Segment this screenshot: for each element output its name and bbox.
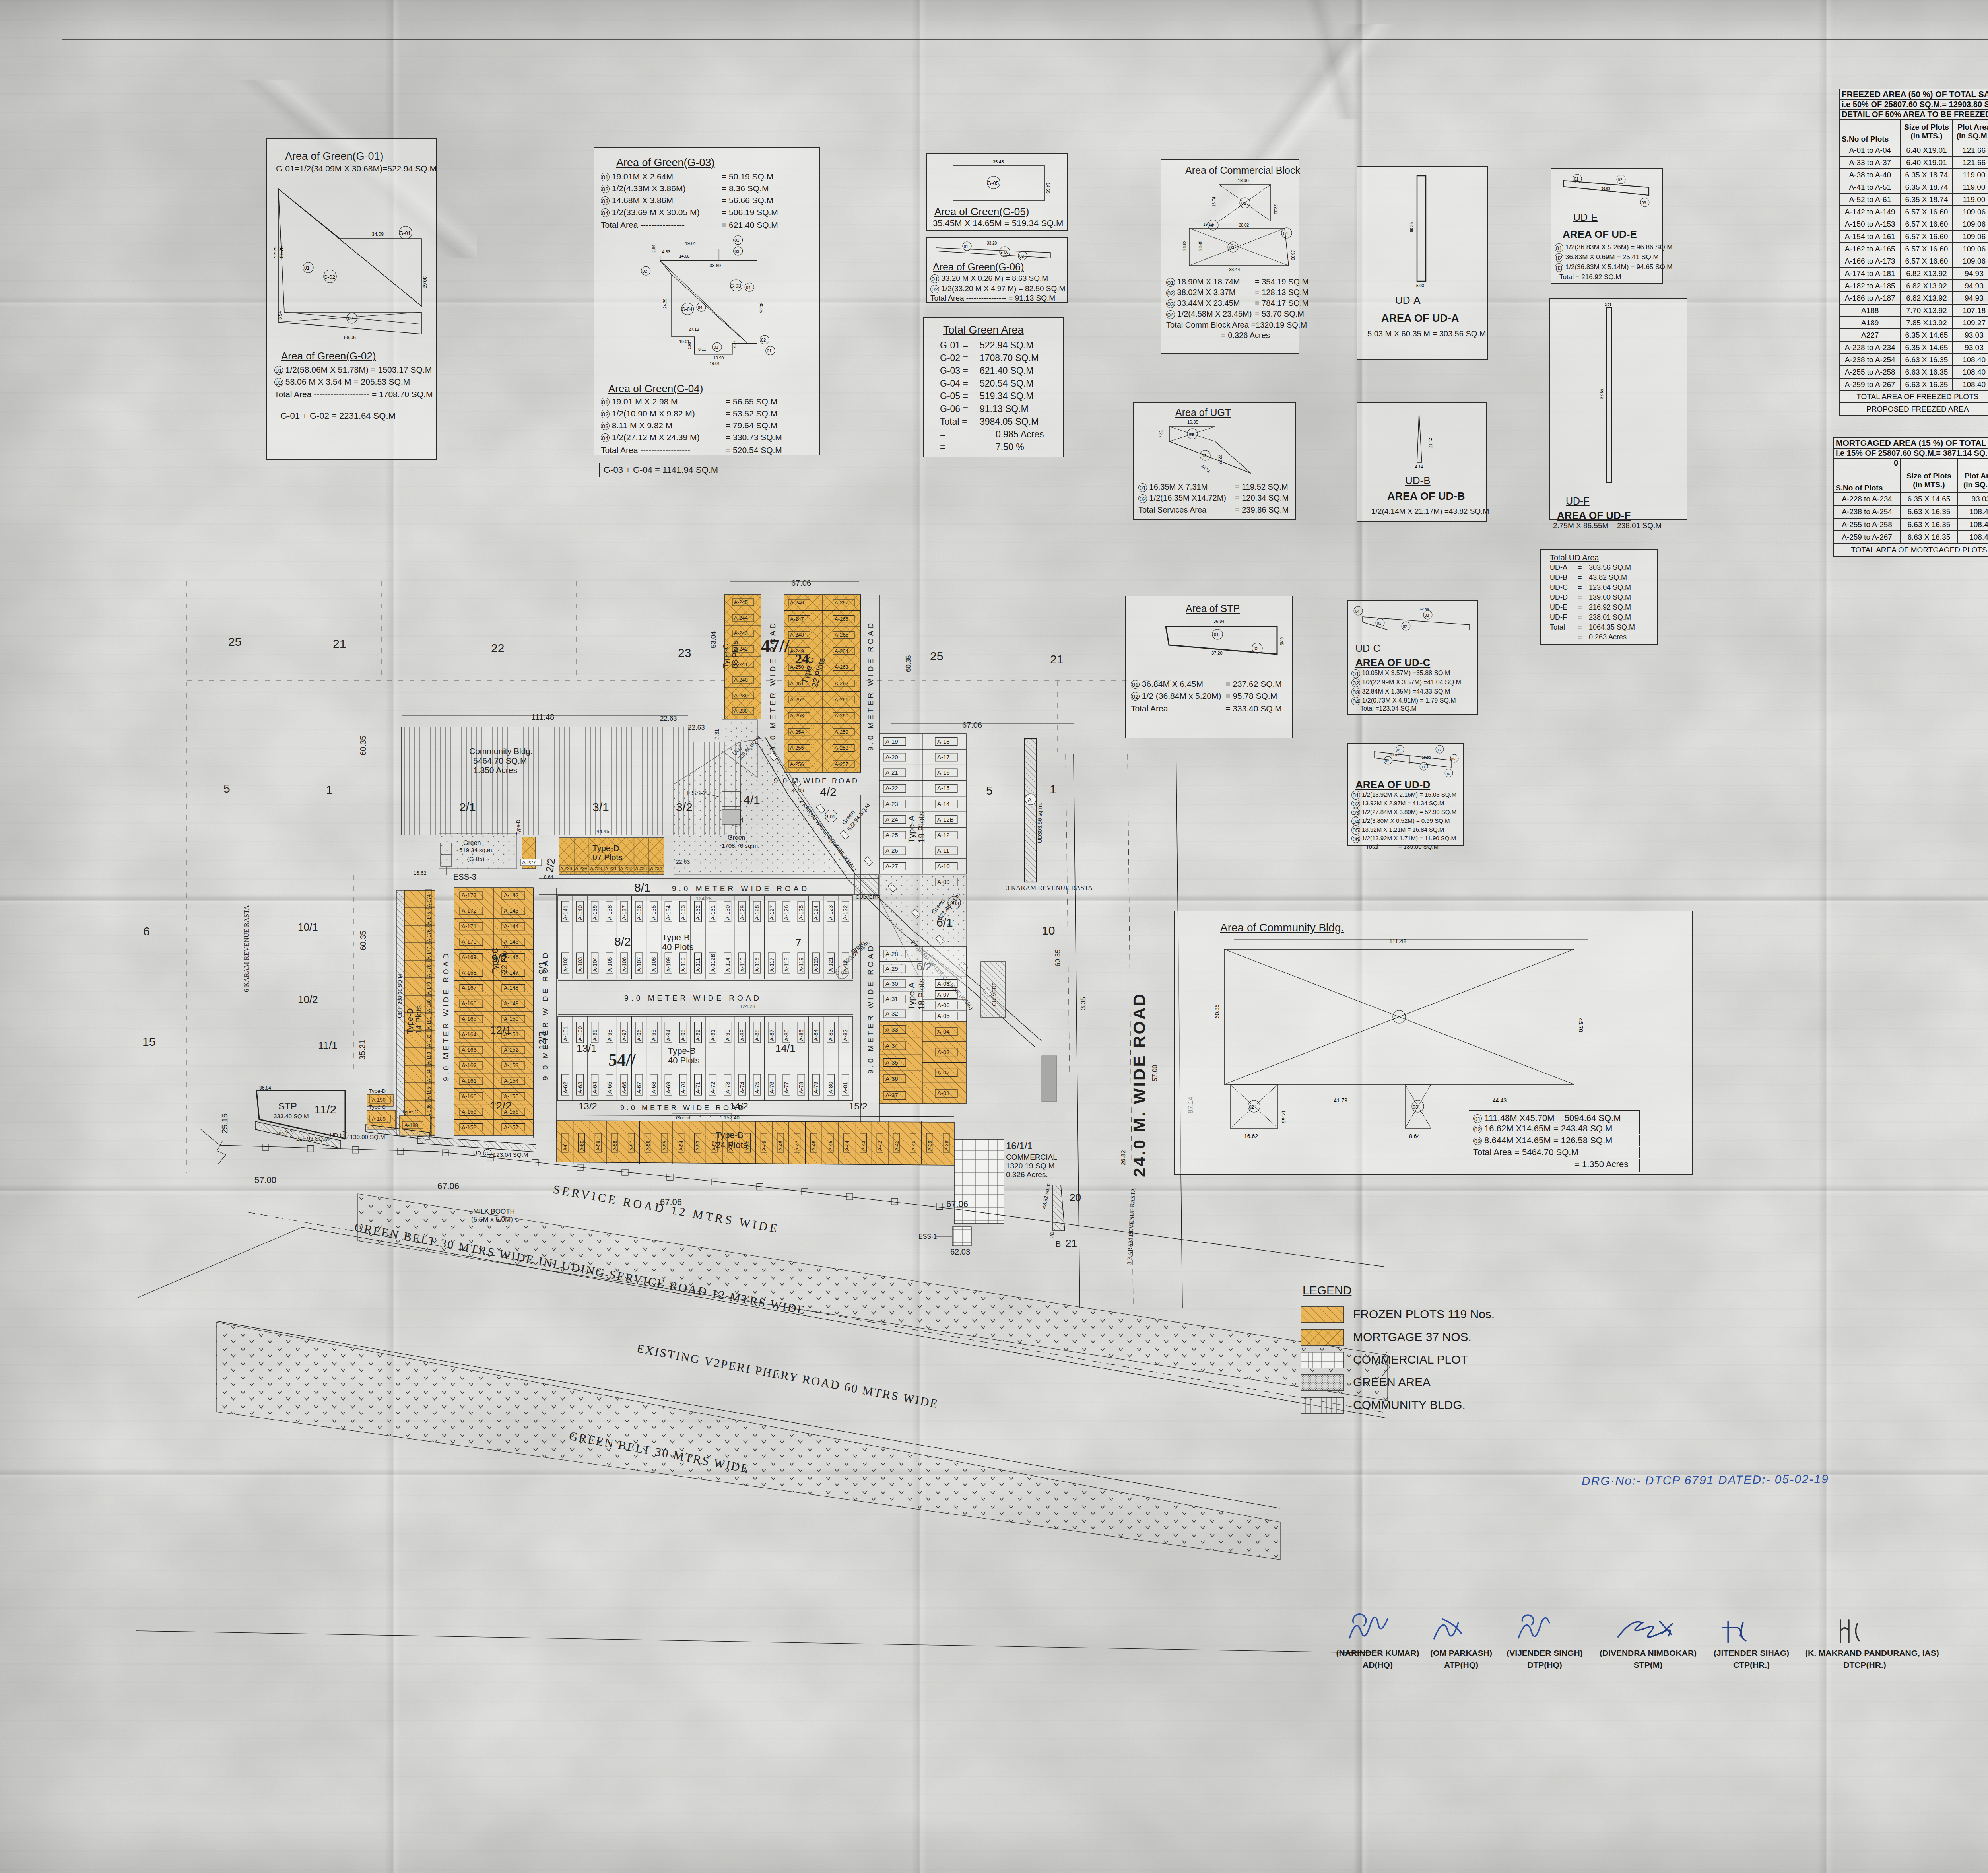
- svg-text:A-64: A-64: [592, 1082, 598, 1094]
- svg-text:Type-C: Type-C: [722, 644, 730, 668]
- svg-text:A-134: A-134: [665, 905, 672, 920]
- svg-text:0.326 Acres.: 0.326 Acres.: [1006, 1170, 1048, 1179]
- svg-text:6 KARAM REVENUE RASTA: 6 KARAM REVENUE RASTA: [243, 905, 250, 992]
- svg-text:A-54: A-54: [679, 1141, 684, 1151]
- svg-text:07 Plots: 07 Plots: [592, 853, 623, 862]
- svg-text:05: 05: [1451, 757, 1455, 761]
- svg-text:A-96: A-96: [636, 1029, 642, 1041]
- svg-text:A-144: A-144: [504, 923, 519, 929]
- svg-text:A-177: A-177: [426, 947, 432, 960]
- svg-text:COMMERCIAL: COMMERCIAL: [1006, 1153, 1057, 1161]
- svg-text:A-233: A-233: [635, 866, 647, 871]
- svg-text:A-81: A-81: [842, 1082, 848, 1094]
- svg-text:01: 01: [1394, 1014, 1399, 1020]
- svg-text:A-152: A-152: [504, 1047, 519, 1053]
- svg-text:A-168: A-168: [462, 970, 477, 976]
- svg-text:7.31: 7.31: [1159, 430, 1163, 438]
- svg-text:ESS-1: ESS-1: [918, 1233, 937, 1240]
- svg-text:A-129: A-129: [739, 905, 745, 920]
- svg-text:21.17: 21.17: [1428, 438, 1433, 448]
- svg-text:Type-B: Type-B: [668, 1046, 696, 1056]
- svg-text:A-149: A-149: [504, 1000, 519, 1006]
- svg-text:23.90: 23.90: [1291, 250, 1295, 260]
- svg-text:9.0 METER WIDE ROAD: 9.0 METER WIDE ROAD: [866, 944, 875, 1074]
- svg-text:A-42: A-42: [878, 1141, 883, 1151]
- svg-text:A-01: A-01: [937, 1090, 950, 1096]
- svg-text:A-262: A-262: [835, 680, 848, 686]
- svg-text:Green: Green: [463, 839, 481, 846]
- svg-text:A-253: A-253: [790, 713, 804, 719]
- svg-text:60.35: 60.35: [359, 736, 367, 756]
- svg-text:A-124: A-124: [813, 905, 819, 920]
- svg-text:CULVERT: CULVERT: [991, 982, 997, 1006]
- svg-text:G-04: G-04: [681, 307, 693, 313]
- svg-text:A-80: A-80: [827, 1082, 834, 1094]
- svg-text:ESS-3: ESS-3: [453, 872, 476, 881]
- svg-text:A-60: A-60: [579, 1141, 585, 1151]
- svg-text:A-266: A-266: [835, 616, 848, 622]
- svg-text:A-12B: A-12B: [937, 816, 954, 823]
- svg-text:37.20: 37.20: [1211, 651, 1223, 655]
- svg-text:A-157: A-157: [504, 1124, 519, 1131]
- svg-text:A-182: A-182: [426, 1034, 432, 1047]
- svg-text:A-107: A-107: [636, 957, 642, 972]
- svg-text:A-228: A-228: [560, 866, 572, 871]
- svg-text:A-125: A-125: [798, 905, 804, 920]
- svg-text:A-85: A-85: [798, 1029, 804, 1041]
- svg-text:22: 22: [491, 641, 504, 655]
- svg-text:G-05: G-05: [987, 180, 999, 186]
- svg-text:A-31: A-31: [885, 995, 898, 1002]
- svg-text:A-36: A-36: [885, 1075, 898, 1082]
- svg-text:A-45: A-45: [828, 1141, 833, 1151]
- svg-text:A-258: A-258: [835, 745, 848, 751]
- svg-text:A-179: A-179: [426, 982, 432, 995]
- svg-text:A-79: A-79: [813, 1082, 819, 1094]
- svg-text:A-190: A-190: [372, 1097, 386, 1103]
- svg-text:SERVICE ROAD 12 MTRS WIDE: SERVICE ROAD 12 MTRS WIDE: [552, 1182, 780, 1235]
- svg-text:123.04 SQ.M: 123.04 SQ.M: [493, 1151, 528, 1158]
- svg-text:A-160: A-160: [462, 1093, 477, 1100]
- svg-text:A-128: A-128: [754, 905, 760, 920]
- svg-text:14.65: 14.65: [1046, 183, 1050, 194]
- svg-text:A-122: A-122: [842, 905, 848, 920]
- svg-text:A-14: A-14: [937, 800, 950, 807]
- svg-text:A-163: A-163: [462, 1047, 477, 1053]
- svg-text:8.64: 8.64: [1409, 1133, 1420, 1139]
- svg-text:A-138: A-138: [606, 905, 613, 920]
- svg-text:9.0 METER WIDE ROAD: 9.0 METER WIDE ROAD: [866, 621, 875, 751]
- svg-text:A-39: A-39: [927, 1141, 933, 1151]
- svg-text:A-102: A-102: [562, 957, 569, 972]
- svg-text:25.15: 25.15: [220, 1113, 229, 1133]
- svg-text:A-05: A-05: [937, 1012, 950, 1019]
- svg-text:13/2: 13/2: [579, 1101, 597, 1111]
- svg-text:3/2: 3/2: [676, 800, 693, 814]
- svg-text:26.82: 26.82: [1182, 241, 1187, 251]
- svg-text:A-244: A-244: [734, 615, 748, 621]
- svg-text:A-35: A-35: [885, 1059, 898, 1066]
- svg-text:18 Plots: 18 Plots: [916, 979, 926, 1010]
- svg-text:5: 5: [986, 784, 993, 797]
- svg-text:13.92: 13.92: [1390, 753, 1399, 757]
- svg-text:A-41: A-41: [894, 1141, 900, 1151]
- svg-text:A-229: A-229: [575, 866, 587, 871]
- svg-text:A-267: A-267: [835, 600, 848, 606]
- svg-text:23.45: 23.45: [1198, 241, 1203, 251]
- svg-text:A-37: A-37: [885, 1092, 898, 1098]
- svg-text:A-240: A-240: [734, 677, 748, 683]
- svg-text:A-126: A-126: [783, 905, 790, 920]
- svg-text:4.33: 4.33: [662, 250, 670, 255]
- svg-text:A-58: A-58: [612, 1141, 618, 1151]
- svg-text:08 Plots: 08 Plots: [731, 641, 739, 668]
- svg-text:32 Plots: 32 Plots: [500, 945, 509, 973]
- svg-text:A-153: A-153: [504, 1062, 519, 1069]
- svg-text:A-135: A-135: [650, 905, 657, 920]
- svg-text:19.12: 19.12: [1203, 222, 1213, 227]
- svg-text:A-24: A-24: [885, 816, 898, 823]
- svg-text:A-04: A-04: [937, 1028, 950, 1035]
- svg-text:01: 01: [1189, 432, 1194, 437]
- svg-text:45.70: 45.70: [1578, 1018, 1584, 1032]
- svg-text:A-02: A-02: [937, 1069, 950, 1076]
- svg-text:16.62: 16.62: [414, 870, 427, 876]
- svg-text:24: 24: [795, 651, 809, 666]
- svg-text:A-154: A-154: [504, 1078, 519, 1084]
- svg-text:01: 01: [1214, 632, 1219, 637]
- svg-text:A-123: A-123: [827, 905, 834, 920]
- svg-text:A-82: A-82: [842, 1029, 848, 1041]
- svg-text:A-34: A-34: [885, 1042, 898, 1049]
- svg-text:33.20: 33.20: [987, 241, 997, 245]
- svg-text:A-74: A-74: [739, 1082, 745, 1094]
- svg-text:Type-C: Type-C: [369, 1104, 386, 1110]
- svg-text:A-232: A-232: [620, 866, 632, 871]
- svg-text:A-145: A-145: [504, 938, 519, 945]
- svg-text:2.64: 2.64: [652, 245, 656, 253]
- svg-text:55.32: 55.32: [274, 246, 276, 258]
- svg-text:A-83: A-83: [827, 1029, 834, 1041]
- svg-text:2.75: 2.75: [1605, 303, 1612, 307]
- svg-text:22.11: 22.11: [1274, 204, 1278, 214]
- svg-text:5: 5: [223, 782, 230, 795]
- svg-text:A-99: A-99: [592, 1029, 598, 1041]
- svg-text:02: 02: [348, 316, 353, 321]
- svg-text:1.350 Acres: 1.350 Acres: [473, 766, 517, 775]
- svg-text:G-03: G-03: [730, 283, 741, 289]
- svg-text:A-131: A-131: [710, 905, 716, 920]
- svg-text:19 Plots: 19 Plots: [916, 812, 926, 843]
- svg-text:03: 03: [1413, 1104, 1418, 1110]
- svg-text:02: 02: [1618, 178, 1623, 182]
- svg-text:Community Bldg.: Community Bldg.: [469, 746, 533, 756]
- svg-text:Type-D: Type-D: [406, 1008, 414, 1034]
- svg-text:A-23: A-23: [885, 800, 898, 807]
- svg-text:A-70: A-70: [680, 1082, 686, 1094]
- svg-text:33.69: 33.69: [710, 263, 721, 268]
- svg-text:A-93: A-93: [680, 1029, 686, 1041]
- svg-text:A: A: [1028, 797, 1032, 803]
- svg-text:A-48: A-48: [778, 1141, 784, 1151]
- svg-text:A-183: A-183: [426, 1052, 432, 1065]
- svg-text:A-234: A-234: [650, 866, 662, 871]
- svg-text:A-66: A-66: [621, 1082, 627, 1094]
- svg-text:03: 03: [1425, 613, 1429, 618]
- svg-text:53.04: 53.04: [710, 631, 717, 648]
- svg-text:27.12: 27.12: [689, 327, 699, 332]
- svg-text:67.06: 67.06: [791, 579, 811, 587]
- svg-text:3/1: 3/1: [592, 800, 609, 814]
- svg-text:03: 03: [1421, 765, 1425, 769]
- svg-text:A-185: A-185: [426, 1087, 432, 1100]
- svg-text:A-136: A-136: [636, 905, 642, 920]
- svg-text:04: 04: [698, 305, 703, 310]
- svg-text:A-38: A-38: [944, 1141, 949, 1151]
- svg-text:A-47: A-47: [795, 1141, 800, 1151]
- svg-text:STP: STP: [278, 1101, 297, 1111]
- svg-text:24.39: 24.39: [663, 299, 667, 309]
- svg-text:A-148: A-148: [504, 985, 519, 991]
- svg-text:B: B: [1056, 1240, 1061, 1248]
- svg-text:02: 02: [643, 269, 647, 274]
- svg-text:23: 23: [678, 646, 691, 659]
- svg-text:A-105: A-105: [606, 957, 613, 972]
- svg-text:26.82: 26.82: [1120, 1150, 1126, 1165]
- svg-text:62.03: 62.03: [950, 1247, 970, 1256]
- svg-text:01: 01: [1397, 748, 1401, 752]
- svg-text:C: C: [485, 1151, 488, 1156]
- svg-text:A-29: A-29: [885, 965, 898, 972]
- svg-text:8/1: 8/1: [634, 881, 651, 894]
- svg-text:01: 01: [767, 349, 772, 353]
- svg-text:A-61: A-61: [563, 1141, 568, 1151]
- svg-text:303.56 sq.m.: 303.56 sq.m.: [1037, 803, 1043, 835]
- svg-text:02: 02: [761, 338, 766, 342]
- svg-text:UD F 238.01 SQ.M: UD F 238.01 SQ.M: [397, 974, 403, 1018]
- svg-text:A-90: A-90: [724, 1029, 731, 1041]
- svg-text:A-175: A-175: [426, 912, 432, 925]
- svg-text:9.0 M WIDE ROAD: 9.0 M WIDE ROAD: [774, 777, 859, 785]
- svg-text:A-84: A-84: [813, 1029, 819, 1041]
- svg-text:18.74: 18.74: [1212, 197, 1216, 207]
- svg-text:43.82 sq.m.: 43.82 sq.m.: [1041, 1181, 1052, 1209]
- svg-text:A-178: A-178: [426, 964, 432, 977]
- svg-text:A-30: A-30: [885, 980, 898, 987]
- svg-text:A-133: A-133: [680, 905, 686, 920]
- svg-text:A-188: A-188: [404, 1122, 418, 1128]
- svg-text:A-140: A-140: [577, 905, 583, 920]
- svg-text:EXISTING V2PERI PHERY ROAD 6: EXISTING V2PERI PHERY ROAD 60 MTRS WIDE: [636, 1341, 940, 1410]
- svg-text:30.68: 30.68: [422, 276, 427, 288]
- svg-text:5464.70 SQ.M: 5464.70 SQ.M: [473, 756, 527, 765]
- svg-text:A-19: A-19: [885, 738, 898, 745]
- svg-text:Type-A: Type-A: [907, 815, 916, 843]
- svg-text:A-111: A-111: [695, 958, 701, 972]
- svg-text:60.35: 60.35: [359, 931, 367, 950]
- svg-text:11/1: 11/1: [318, 1039, 338, 1051]
- svg-text:A-120: A-120: [813, 957, 819, 972]
- svg-text:A-150: A-150: [504, 1016, 519, 1022]
- svg-text:A-100: A-100: [577, 1026, 583, 1041]
- svg-text:58.06: 58.06: [344, 335, 356, 340]
- svg-text:60.35: 60.35: [1409, 222, 1414, 232]
- svg-text:04: 04: [1355, 609, 1360, 614]
- svg-text:13.92: 13.92: [1422, 756, 1431, 760]
- svg-text:3 KARAM REVENUE RASTA: 3 KARAM REVENUE RASTA: [1126, 1188, 1136, 1265]
- svg-text:A-92: A-92: [695, 1029, 701, 1041]
- svg-text:3.54: 3.54: [278, 311, 282, 320]
- svg-text:24.0 M. WIDE ROAD: 24.0 M. WIDE ROAD: [1130, 992, 1149, 1177]
- svg-text:19.01: 19.01: [710, 361, 720, 366]
- svg-text:ESS-2: ESS-2: [687, 789, 707, 797]
- svg-text:02: 02: [1385, 759, 1389, 763]
- svg-text:A-71: A-71: [695, 1082, 701, 1094]
- svg-text:A-265: A-265: [835, 632, 848, 638]
- svg-text:A-142: A-142: [504, 892, 519, 898]
- svg-text:A-174: A-174: [426, 894, 432, 907]
- svg-text:Type-A: Type-A: [907, 982, 916, 1010]
- svg-text:A-162: A-162: [462, 1062, 477, 1069]
- svg-text:14.65: 14.65: [1281, 1110, 1287, 1123]
- svg-text:A-78: A-78: [798, 1082, 804, 1094]
- svg-text:A-88: A-88: [754, 1029, 760, 1041]
- svg-text:03: 03: [735, 249, 740, 254]
- svg-text:A-27: A-27: [885, 863, 898, 869]
- svg-text:A-259: A-259: [835, 729, 848, 735]
- svg-text:A-32: A-32: [885, 1010, 898, 1017]
- svg-text:A-104: A-104: [592, 957, 598, 972]
- svg-text:A-161: A-161: [462, 1078, 477, 1084]
- svg-text:A-239: A-239: [734, 692, 748, 698]
- svg-text:A-141: A-141: [562, 905, 569, 920]
- svg-text:A-256: A-256: [790, 761, 804, 767]
- svg-text:A-10: A-10: [937, 863, 950, 869]
- svg-text:5.03: 5.03: [1416, 284, 1424, 288]
- svg-text:32.84: 32.84: [1420, 607, 1429, 611]
- svg-text:A-55: A-55: [662, 1141, 668, 1151]
- svg-text:01: 01: [1241, 201, 1246, 206]
- svg-text:A-12: A-12: [842, 960, 848, 972]
- svg-text:A-28: A-28: [885, 950, 898, 957]
- svg-text:8/2: 8/2: [614, 935, 631, 948]
- svg-text:A-181: A-181: [426, 1017, 432, 1030]
- svg-text:G-01: G-01: [825, 814, 835, 820]
- svg-text:A-252: A-252: [790, 697, 804, 703]
- svg-text:A-53: A-53: [695, 1141, 701, 1151]
- svg-text:15/2: 15/2: [849, 1101, 868, 1111]
- svg-text:03: 03: [1229, 245, 1234, 250]
- svg-text:A-33: A-33: [885, 1026, 898, 1033]
- svg-text:40 Plots: 40 Plots: [662, 942, 694, 952]
- svg-text:3.35: 3.35: [1079, 997, 1087, 1010]
- svg-text:36.84: 36.84: [259, 1085, 271, 1091]
- svg-text:9.0 METER WIDE ROAD: 9.0 METER WIDE ROAD: [672, 884, 810, 893]
- svg-text:A-77: A-77: [783, 1082, 790, 1094]
- svg-text:86.55: 86.55: [1600, 389, 1604, 399]
- svg-text:04: 04: [1283, 231, 1288, 236]
- svg-text:41.79: 41.79: [1334, 1097, 1347, 1104]
- svg-text:02: 02: [1254, 646, 1258, 651]
- svg-text:24 Plots: 24 Plots: [716, 1140, 747, 1150]
- svg-text:67.06: 67.06: [962, 721, 982, 729]
- svg-text:A-95: A-95: [650, 1029, 657, 1041]
- svg-text:A-63: A-63: [577, 1082, 583, 1094]
- svg-text:A-261: A-261: [835, 697, 848, 703]
- svg-text:9.0 METER WIDE ROAD: 9.0 METER WIDE ROAD: [769, 621, 777, 751]
- svg-text:A-08: A-08: [937, 980, 950, 987]
- svg-text:Green: Green: [728, 834, 745, 841]
- svg-text:A-260: A-260: [835, 713, 848, 719]
- svg-text:03: 03: [714, 345, 718, 350]
- svg-text:E: E: [286, 1131, 289, 1136]
- svg-text:6.45: 6.45: [1279, 637, 1284, 645]
- svg-text:A-20: A-20: [885, 754, 898, 760]
- svg-text:A-72: A-72: [710, 1082, 716, 1094]
- svg-text:G-03: G-03: [947, 900, 959, 906]
- svg-text:A-91: A-91: [710, 1029, 716, 1041]
- svg-text:02: 02: [1403, 624, 1408, 629]
- svg-text:22.03: 22.03: [1218, 455, 1222, 464]
- svg-text:A-62: A-62: [562, 1082, 569, 1094]
- svg-text:A-76: A-76: [769, 1082, 775, 1094]
- svg-text:9.0 METER WIDE ROAD: 9.0 METER WIDE ROAD: [620, 1104, 746, 1112]
- svg-text:25: 25: [228, 635, 241, 648]
- svg-text:A-06: A-06: [937, 1002, 950, 1008]
- svg-text:4/2: 4/2: [820, 785, 837, 799]
- svg-text:A-246: A-246: [790, 600, 804, 606]
- svg-text:A-186: A-186: [426, 1104, 432, 1117]
- svg-text:A-110: A-110: [680, 957, 686, 972]
- svg-text:G-01: G-01: [399, 230, 411, 236]
- svg-text:A-112B: A-112B: [710, 954, 716, 972]
- svg-text:10: 10: [1042, 924, 1055, 937]
- svg-text:2.98: 2.98: [687, 342, 691, 349]
- svg-text:(G-05): (G-05): [467, 855, 484, 862]
- svg-text:111.48: 111.48: [1389, 938, 1407, 944]
- svg-text:A-173: A-173: [462, 892, 477, 898]
- svg-text:1708.70 sq.m.: 1708.70 sq.m.: [722, 842, 759, 849]
- svg-text:A-108: A-108: [650, 957, 657, 972]
- svg-text:40 Plots: 40 Plots: [668, 1055, 700, 1065]
- svg-text:12/1: 12/1: [490, 1024, 512, 1036]
- svg-text:51.78: 51.78: [279, 246, 284, 258]
- svg-text:60.35: 60.35: [1214, 1005, 1220, 1018]
- svg-text:01: 01: [1377, 621, 1382, 626]
- svg-text:A-49: A-49: [761, 1141, 767, 1151]
- svg-text:124.28: 124.28: [740, 1003, 755, 1009]
- svg-text:04: 04: [746, 286, 751, 290]
- svg-text:14/1: 14/1: [775, 1042, 796, 1054]
- svg-text:2/2: 2/2: [543, 857, 557, 873]
- svg-text:A-184: A-184: [426, 1069, 432, 1082]
- svg-text:01: 01: [304, 265, 310, 271]
- svg-text:36.84: 36.84: [1213, 619, 1225, 624]
- svg-text:A-12: A-12: [937, 832, 950, 838]
- svg-text:216.92 SQ.M: 216.92 SQ.M: [296, 1135, 329, 1142]
- svg-text:10/1: 10/1: [298, 921, 318, 933]
- svg-text:16.62: 16.62: [1244, 1133, 1258, 1139]
- svg-text:A-171: A-171: [462, 923, 477, 929]
- svg-text:A-119: A-119: [798, 957, 804, 972]
- svg-text:333.40 SQ.M: 333.40 SQ.M: [274, 1113, 309, 1119]
- svg-text:A-121: A-121: [827, 957, 834, 972]
- svg-text:A-69: A-69: [665, 1082, 672, 1094]
- svg-text:A-116: A-116: [754, 957, 760, 972]
- svg-text:A-16: A-16: [937, 769, 950, 776]
- svg-text:35.21: 35.21: [358, 1040, 367, 1060]
- svg-text:8.64: 8.64: [544, 874, 553, 880]
